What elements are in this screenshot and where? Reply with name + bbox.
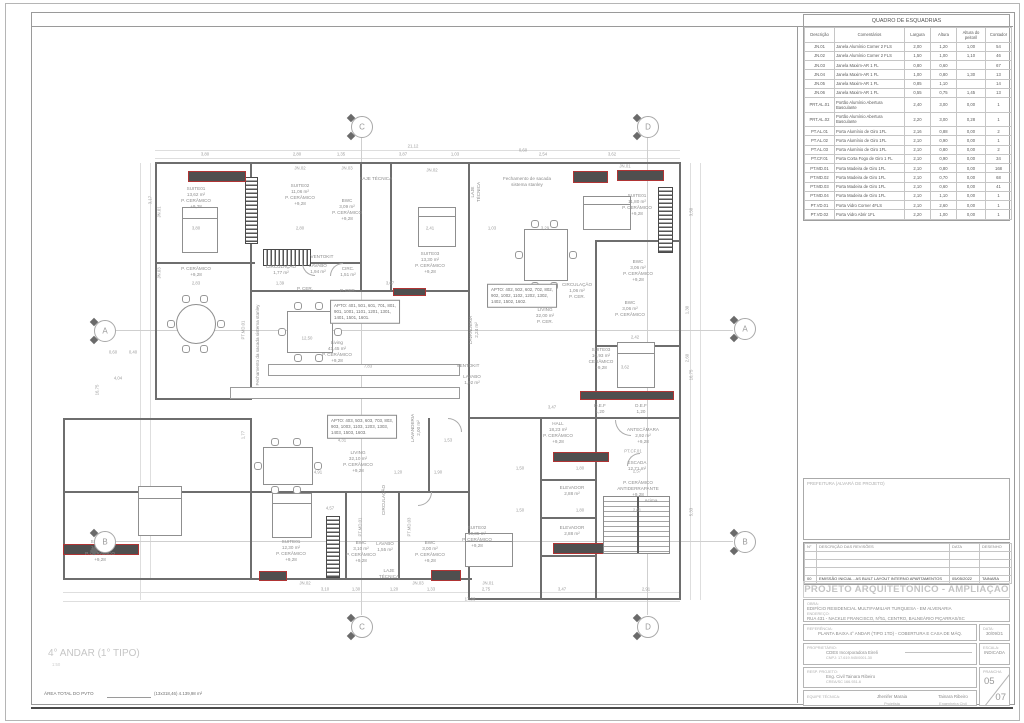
esquadrias-cell <box>957 61 986 70</box>
esquadrias-cell: 1 <box>986 136 1012 145</box>
esquadrias-cell: PRT.AL.01 <box>805 98 835 113</box>
dimension-line <box>155 150 680 151</box>
grid-bubble: C <box>351 116 373 138</box>
esquadrias-cell: 0,60 <box>931 61 957 70</box>
room-label: LAJETÉCNICA <box>470 182 482 202</box>
frame-bottom-heavy-line <box>31 707 1013 709</box>
esquadrias-cell: 0,80 <box>905 61 931 70</box>
dimension-label: 2,54 <box>539 152 547 157</box>
wall <box>540 555 597 557</box>
esquadrias-cell: PT.VD.02 <box>805 210 835 219</box>
equipe-nome-2: Tainara Ribeiro <box>922 694 977 699</box>
bed-furniture <box>272 493 312 538</box>
dimension-label: 7,83 <box>364 364 372 369</box>
esquadrias-cell: JN.03 <box>805 61 835 70</box>
dimension-label: 0,40 <box>129 350 137 355</box>
esquadrias-cell: Porta Vidro Corner 4FLS <box>835 201 905 210</box>
wall <box>540 517 597 519</box>
esquadrias-cell: PT.MD.04 <box>805 191 835 200</box>
dimension-label: 1,35 <box>337 152 345 157</box>
prefeitura-box: PREFEITURA (ALVARÁ DE PROJETO) <box>803 478 1010 540</box>
esquadrias-cell: 2,00 <box>905 42 931 51</box>
hatch-shaft <box>245 177 258 244</box>
esquadrias-row: PT.AL.02Porta Alumínio de Giro 1FL2,100,… <box>805 136 1012 145</box>
esquadrias-cell: 1,45 <box>957 88 986 97</box>
dimension-label: 17,08 <box>465 597 476 602</box>
shaft <box>580 391 674 400</box>
esquadrias-cell: Porta Madeira de Giro 1FL <box>835 173 905 182</box>
esquadrias-cell: 2,10 <box>905 173 931 182</box>
esquadrias-cell: Porta Madeira de Giro 1FL <box>835 164 905 173</box>
dimension-label: 0,60 <box>109 350 117 355</box>
room-label: LAVANDERIA2,00 m² <box>410 414 422 442</box>
dimension-label: 1,30 <box>685 306 690 314</box>
esquadrias-cell: Janela Maxim-AR 1 FL <box>835 79 905 88</box>
wall <box>398 491 400 580</box>
esquadrias-cell: 2,60 <box>931 201 957 210</box>
room-label: SUITE0210,35 m²P. CERÂMICO+9,28 <box>462 525 492 549</box>
chair <box>531 220 539 228</box>
esquadrias-cell: 0,00 <box>957 182 986 191</box>
esquadrias-cell: JN.05 <box>805 79 835 88</box>
equipe-cargo-1: Projetista <box>859 700 925 706</box>
shaft <box>553 452 609 462</box>
room-label: SUITE0111,80 m²P. CERÂMICO+9,28 <box>622 193 652 217</box>
esquadrias-row: PT.MD.04Porta Madeira de Giro 1FL2,101,1… <box>805 191 1012 200</box>
dimension-label: 16,75 <box>689 370 694 381</box>
esquadrias-cell: 2,10 <box>905 145 931 154</box>
esquadrias-cell: Porta Vidro Abrir 1FL <box>835 210 905 219</box>
shaft <box>573 171 608 183</box>
esquadrias-cell: 0,00 <box>957 164 986 173</box>
esquadrias-grid: DescriçãoComentáriosLarguraAlturaAltura … <box>804 27 1012 220</box>
esquadrias-cell: 0,75 <box>931 88 957 97</box>
esquadrias-cell: 1 <box>986 112 1012 127</box>
esquadrias-row: PT.VD.01Porta Vidro Corner 4FLS2,102,600… <box>805 201 1012 210</box>
revisions-col-header: DESCRIÇÃO DAS REVISÕES <box>817 544 950 552</box>
shaft <box>259 571 287 581</box>
grid-bubble: A <box>94 320 116 342</box>
dimension-label: 1,20 <box>390 587 398 592</box>
esquadrias-cell: PT.AL.03 <box>805 145 835 154</box>
revisions-empty-cell <box>805 559 817 567</box>
project-main-title: PROJETO ARQUITETÔNICO - AMPLIAÇÃO - AS B… <box>803 581 1010 598</box>
esquadrias-cell: 1 <box>986 191 1012 200</box>
dimension-label: 3,50 <box>689 208 694 216</box>
chair <box>293 438 301 446</box>
prancha-label: PRANCHA <box>980 668 1009 674</box>
grid-bubble: D <box>637 116 659 138</box>
dimension-label: JN.01 <box>157 206 162 217</box>
esquadrias-cell <box>957 79 986 88</box>
dimension-label: 1,20 <box>394 470 402 475</box>
drawing-sheet: QUADRO DE ESQUADRIAS DescriçãoComentário… <box>0 0 1024 723</box>
dimension-label: 4,57 <box>326 506 334 511</box>
esquadrias-row: JN.01Janela Alumínio Corner 2 FLS2,001,2… <box>805 42 1012 51</box>
esquadrias-cell: PT.MD.02 <box>805 173 835 182</box>
wall <box>679 162 681 600</box>
room-label: Living43,45 m²P. CERÂMICO+9,28 <box>322 340 352 364</box>
revisions-col-header: DESENHO <box>980 544 1012 552</box>
shaft <box>188 171 246 182</box>
esquadrias-cell: Porta Alumínio de Giro 1FL <box>835 145 905 154</box>
esquadrias-cell: 13 <box>986 70 1012 79</box>
signature-line <box>905 652 972 653</box>
chair <box>254 462 262 470</box>
esquadrias-cell: 1,30 <box>957 70 986 79</box>
chair <box>217 320 225 328</box>
chair <box>294 354 302 362</box>
room-label: Acima <box>645 498 658 504</box>
esquadrias-cell: 67 <box>986 61 1012 70</box>
wall <box>428 418 430 493</box>
room-label: SUITE0310,93 m²CERÂMICO+9,28 <box>589 347 614 371</box>
dimension-line <box>63 601 680 602</box>
dimension-label: 3,62 <box>621 365 629 370</box>
esquadrias-row: PT.CF.01Porta Corta Fogo de Giro 1 FL2,1… <box>805 154 1012 163</box>
room-label: P. CER. <box>340 288 356 294</box>
esquadrias-cell: Janela Maxim-AR 1 FL <box>835 88 905 97</box>
room-label: BWC3,09 m²P. CERÂMICO+9,28 <box>332 198 362 222</box>
esquadrias-table: QUADRO DE ESQUADRIAS DescriçãoComentário… <box>803 14 1010 221</box>
esquadrias-cell: Portão Alumínio Abertura Basculante <box>835 98 905 113</box>
revisions-empty-cell <box>805 567 817 575</box>
dimension-line <box>63 592 680 593</box>
wall <box>63 418 65 580</box>
wall <box>63 418 252 420</box>
dimension-label: 2,41 <box>426 226 434 231</box>
room-label: BWC3,06 m²P. CERÂMICO+9,28 <box>623 259 653 283</box>
referencia-box: REFERÊNCIA: PLANTA BAIXA 4° ANDAR (TIPO … <box>803 624 977 641</box>
chair <box>182 295 190 303</box>
esquadrias-cell: 2 <box>986 127 1012 136</box>
dimension-label: 1,50 <box>516 508 524 513</box>
esquadrias-cell: 1,10 <box>931 191 957 200</box>
dimension-label: 4,04 <box>114 376 122 381</box>
esquadrias-cell: JN.02 <box>805 51 835 60</box>
revisions-empty-cell <box>950 551 980 559</box>
esquadrias-cell: Janela Alumínio Corner 2 FLS <box>835 42 905 51</box>
dimension-line <box>690 163 691 600</box>
room-label: P. CERÂMICO+9,28 <box>181 266 211 278</box>
esquadrias-cell: 0,85 <box>905 79 931 88</box>
esquadrias-cell: Janela Alumínio Corner 2 FLS <box>835 51 905 60</box>
chair <box>294 302 302 310</box>
shaft <box>431 570 461 581</box>
esquadrias-cell: 0,55 <box>905 88 931 97</box>
wall <box>250 290 470 292</box>
wall <box>155 162 157 400</box>
prefeitura-label: PREFEITURA (ALVARÁ DE PROJETO) <box>804 479 1009 488</box>
dimension-label: 3,87 <box>399 152 407 157</box>
shaft <box>617 170 664 181</box>
dimension-label: 3,17 <box>148 196 153 204</box>
room-label: P. CER. <box>297 286 313 292</box>
revisions-empty-row <box>805 559 1012 567</box>
dimension-label: 1,90 <box>434 470 442 475</box>
chair <box>271 486 279 494</box>
dimension-label: 2,57 <box>633 469 641 474</box>
esquadrias-cell: 2,10 <box>905 164 931 173</box>
room-label: LAVABO1,94 m² <box>309 263 327 275</box>
obra-box: OBRA: EDIFÍCIO RESIDENCIAL MULTIFAMILIAR… <box>803 599 1010 622</box>
chair <box>293 486 301 494</box>
resp-projeto-box: RESP. PROJETO: Eng. Civil Tainara Ribeir… <box>803 667 977 688</box>
esquadrias-cell: 1,10 <box>957 51 986 60</box>
esquadrias-cell: Janela Maxim-AR 1 FL <box>835 61 905 70</box>
data-value: 30/09/21 <box>980 631 1009 636</box>
dimension-label: 3,29 <box>541 226 549 231</box>
esquadrias-cell: 1 <box>986 210 1012 219</box>
esquadrias-cell: PT.AL.01 <box>805 127 835 136</box>
revisions-table: N°DESCRIÇÃO DAS REVISÕESDATADESENHO 00EM… <box>803 542 1010 585</box>
dimension-label: 1,77 <box>241 431 246 439</box>
esquadrias-cell: 2,16 <box>905 127 931 136</box>
dimension-label: JN.03 <box>412 581 423 586</box>
wall <box>540 418 542 600</box>
dimension-label: PT.MD.01 <box>358 518 363 537</box>
data-box: DATA: 30/09/21 <box>979 624 1010 641</box>
room-label: CIRCULAÇÃO <box>381 485 387 515</box>
esquadrias-cell: 1,00 <box>957 42 986 51</box>
area-total-value: (13x318,46) 4.139,98 m² <box>154 691 202 696</box>
esquadrias-cell: 2,20 <box>905 210 931 219</box>
dimension-label: 1,03 <box>488 226 496 231</box>
wall <box>250 418 252 580</box>
dimension-label: 3,80 <box>192 226 200 231</box>
dimension-label: 3,10 <box>321 587 329 592</box>
wall <box>63 491 469 493</box>
esquadrias-cell: 0,28 <box>957 112 986 127</box>
revisions-empty-row <box>805 551 1012 559</box>
esquadrias-cell: JN.04 <box>805 70 835 79</box>
wall <box>155 162 681 164</box>
esquadrias-cell: 1,20 <box>931 42 957 51</box>
chair <box>167 320 175 328</box>
room-label: LAJE TÉCNICA <box>360 176 392 182</box>
esquadrias-row: PT.AL.03Porta Alumínio de Giro 1FL2,100,… <box>805 145 1012 154</box>
grid-bubble: C <box>351 616 373 638</box>
esquadrias-cell: 1,00 <box>931 51 957 60</box>
room-label: LIVING32,10 m²P. CERÂMICO+9,28 <box>343 450 373 474</box>
esquadrias-cell: 34 <box>986 154 1012 163</box>
dimension-label: 2,80 <box>293 152 301 157</box>
revisions-empty-cell <box>817 551 950 559</box>
esquadrias-row: JN.03Janela Maxim-AR 1 FL0,800,6067 <box>805 61 1012 70</box>
dimension-label: PT.MD.03 <box>407 518 412 537</box>
dimension-label: 3,62 <box>608 152 616 157</box>
dimension-label: 2,60 <box>685 354 690 362</box>
esquadrias-cell: 0,00 <box>957 154 986 163</box>
esquadrias-cell: 2,10 <box>905 201 931 210</box>
esquadrias-cell: 1,10 <box>931 79 957 88</box>
chair <box>278 328 286 336</box>
grid-bubble: B <box>94 531 116 553</box>
proprietario-doc: CNPJ: 17.619.945/0001-30 <box>804 655 976 661</box>
room-label: LAJETÉCNICA <box>379 568 399 580</box>
room-label: BWC3,06 m²P. CERÂMICO <box>615 300 645 318</box>
dimension-label: 1,80 <box>576 466 584 471</box>
resp-reg: CREA/SC 166.931-6 <box>804 679 976 685</box>
prancha-number: 05 <box>984 676 995 687</box>
shaft <box>393 288 426 296</box>
revisions-empty-cell <box>805 551 817 559</box>
esquadrias-cell: 0,00 <box>957 136 986 145</box>
esquadrias-row: PT.MD.03Porta Madeira de Giro 1FL2,100,6… <box>805 182 1012 191</box>
room-label: D.E.F1,20 <box>635 403 647 415</box>
dimension-label: JN.02 <box>426 168 437 173</box>
room-label: LAVABO1,55 m² <box>376 541 394 553</box>
dimension-label: 2,61 <box>633 508 641 513</box>
esquadrias-title: QUADRO DE ESQUADRIAS <box>804 15 1009 27</box>
esquadrias-cell: 0,00 <box>957 210 986 219</box>
grid-bubble: D <box>637 616 659 638</box>
esquadrias-cell: 3,00 <box>931 112 957 127</box>
bed-furniture <box>418 207 456 247</box>
room-label: LAVANDERIA2,24 m² <box>468 316 480 344</box>
chair <box>271 438 279 446</box>
esquadrias-cell: 54 <box>986 42 1012 51</box>
esquadrias-cell: 0,60 <box>931 182 957 191</box>
equipe-label: EQUIPE TÉCNICA: <box>804 693 843 699</box>
revisions-empty-cell <box>980 567 1012 575</box>
room-label: BWC3,00 m²P. CERÂMICO+9,28 <box>415 540 445 564</box>
esquadrias-row: PRT.AL.01Portão Alumínio Abertura Bascul… <box>805 98 1012 113</box>
esquadrias-cell: Porta Alumínio de Giro 1FL <box>835 136 905 145</box>
dimension-label: 1,39 <box>276 281 284 286</box>
esquadrias-cell: 46 <box>986 51 1012 60</box>
esquadrias-cell: 14 <box>986 79 1012 88</box>
esquadrias-cell: 2,10 <box>905 154 931 163</box>
dimension-label: 2,80 <box>296 226 304 231</box>
room-label: ANTECÂMARA2,92 m²+9,28 <box>627 427 659 445</box>
esquadrias-cell: 1 <box>986 201 1012 210</box>
esquadrias-col-header: Descrição <box>805 28 835 43</box>
revisions-grid: N°DESCRIÇÃO DAS REVISÕESDATADESENHO 00EM… <box>804 543 1012 584</box>
dimension-label: 21,12 <box>408 144 419 149</box>
room-label: CIRC.1,51 m² <box>340 266 356 278</box>
revisions-empty-cell <box>817 567 950 575</box>
dimension-label: JN.02 <box>294 166 305 171</box>
dining-table <box>263 447 313 485</box>
room-label: CIRCULAÇÃO1,77 m² <box>266 264 296 276</box>
wall <box>540 479 597 481</box>
dimension-label: JN.03 <box>341 166 352 171</box>
room-label: P. CERÂMICOANTIDERRAPANTE+9,28 <box>617 480 659 498</box>
esquadrias-cell: Porta Corta Fogo de Giro 1 FL <box>835 154 905 163</box>
esquadrias-cell: PT.CF.01 <box>805 154 835 163</box>
wall <box>345 491 347 580</box>
dimension-label: JN.03 <box>157 267 162 278</box>
area-total-line <box>107 697 151 698</box>
dimension-label: 1,80 <box>576 508 584 513</box>
esquadrias-cell: 2 <box>986 145 1012 154</box>
dimension-label: JN.02 <box>299 581 310 586</box>
dimension-label: JN.01 <box>482 581 493 586</box>
esquadrias-row: PRT.AL.02Portão Alumínio Abertura Bascul… <box>805 112 1012 127</box>
esquadrias-cell: 13 <box>986 88 1012 97</box>
esquadrias-cell: PRT.AL.02 <box>805 112 835 127</box>
dimension-label: 3,47 <box>548 405 556 410</box>
chair <box>569 251 577 259</box>
prancha-box: PRANCHA 05 07 <box>979 667 1010 706</box>
esquadrias-cell: PT.AL.02 <box>805 136 835 145</box>
dimension-label: 3,67 <box>386 281 394 286</box>
esquadrias-cell: 1 <box>986 98 1012 113</box>
esquadrias-cell: Janela Maxim-AR 1 FL <box>835 70 905 79</box>
dimension-label: 1,50 <box>516 466 524 471</box>
dimension-label: 5,33 <box>689 508 694 516</box>
esquadrias-cell: PT.MD.01 <box>805 164 835 173</box>
revisions-col-header: N° <box>805 544 817 552</box>
dimension-label: PT.MD.01 <box>241 321 246 340</box>
revisions-empty-row <box>805 567 1012 575</box>
room-label: SUITE0211,06 m²P. CERÂMICO+9,28 <box>285 183 315 207</box>
esquadrias-cell: 0,00 <box>957 201 986 210</box>
wall <box>470 598 681 600</box>
dimension-label: 0,60 <box>519 148 527 153</box>
esquadrias-cell: 0,88 <box>931 127 957 136</box>
room-label: SUITE0313,30 m²P. CERÂMICO+9,28 <box>415 251 445 275</box>
esquadrias-cell: 2,20 <box>905 112 931 127</box>
chair <box>550 220 558 228</box>
esquadrias-row: JN.02Janela Alumínio Corner 2 FLS1,501,0… <box>805 51 1012 60</box>
esquadrias-cell: 1,00 <box>905 70 931 79</box>
esquadrias-cell: 2,10 <box>905 191 931 200</box>
equipe-cargo-2: Engenheira Civil <box>922 700 977 706</box>
apto-list-box: APTO: 402, 502, 602, 702, 802,902, 1002,… <box>487 284 557 308</box>
esquadrias-cell: 0,80 <box>931 145 957 154</box>
chair <box>182 345 190 353</box>
dimension-label: PT.CF.01 <box>624 449 641 454</box>
round-table <box>176 304 216 344</box>
revisions-empty-cell <box>980 551 1012 559</box>
esquadrias-cell: 0,00 <box>957 191 986 200</box>
room-label: LAVABO1,92 m² <box>463 374 481 386</box>
esquadrias-cell: 0,70 <box>931 173 957 182</box>
revisions-empty-cell <box>950 559 980 567</box>
esquadrias-cell: 41 <box>986 182 1012 191</box>
prancha-total: 07 <box>995 692 1006 703</box>
esquadrias-cell: 0,80 <box>931 70 957 79</box>
room-label: HALL18,23 m²P. CERÂMICO+9,28 <box>543 421 573 445</box>
room-label: SUITE0112,30 m²P. CERÂMICO+9,28 <box>276 539 306 563</box>
dining-table <box>524 229 568 281</box>
esquadrias-cell: PT.VD.01 <box>805 201 835 210</box>
esquadrias-row: PT.MD.01Porta Madeira de Giro 1FL2,100,8… <box>805 164 1012 173</box>
kitchen-counter <box>230 387 460 399</box>
title-block-column-line <box>797 26 798 703</box>
esquadrias-cell: PT.MD.03 <box>805 182 835 191</box>
esquadrias-row: PT.VD.02Porta Vidro Abrir 1FL2,201,000,0… <box>805 210 1012 219</box>
dimension-label: 16,75 <box>95 385 100 396</box>
referencia-value: PLANTA BAIXA 4° ANDAR (TIPO 1TD) - COBER… <box>804 631 976 636</box>
room-label: VENTOKIT <box>457 363 480 369</box>
dimension-label: 1,30 <box>352 587 360 592</box>
stairs <box>603 496 670 554</box>
chair <box>200 345 208 353</box>
dimension-label: 2,75 <box>482 587 490 592</box>
escala-value: INDICADA <box>980 650 1009 655</box>
proprietario-box: PROPRIETÁRIO: CDES Incorporadora Eireli … <box>803 643 977 665</box>
hatch-shaft <box>658 187 673 253</box>
dimension-line <box>155 158 680 159</box>
equipe-nome-1: Jhenifer Maraia <box>859 694 925 699</box>
esquadrias-col-header: Comentários <box>835 28 905 43</box>
dimension-label: 2,91 <box>642 587 650 592</box>
hatch-shaft <box>326 516 340 578</box>
esquadrias-cell: JN.01 <box>805 42 835 51</box>
